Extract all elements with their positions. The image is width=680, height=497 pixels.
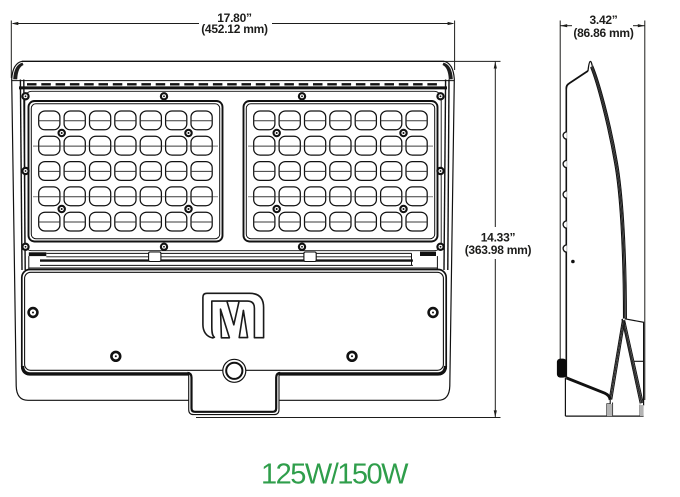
svg-text:(86.86 mm): (86.86 mm)	[573, 26, 633, 40]
svg-text:125W/150W: 125W/150W	[261, 459, 409, 491]
svg-text:(363.98 mm): (363.98 mm)	[465, 243, 532, 257]
svg-text:(452.12 mm): (452.12 mm)	[201, 22, 268, 36]
